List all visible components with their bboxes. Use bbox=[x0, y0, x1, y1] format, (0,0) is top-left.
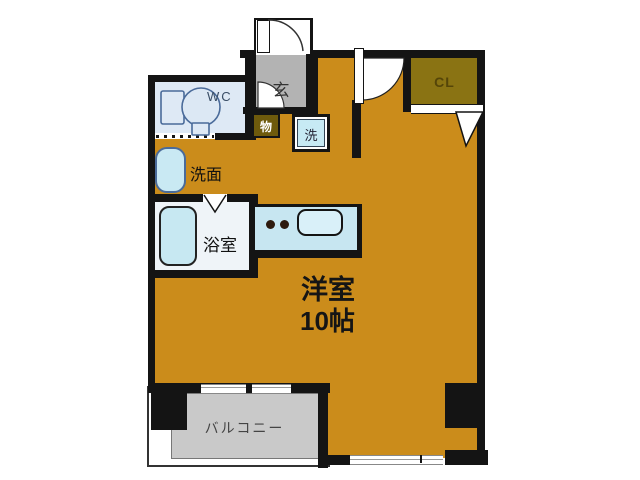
wc-label: WC bbox=[207, 89, 233, 104]
balcony-window-right bbox=[252, 384, 291, 394]
wall-bath-top-a bbox=[148, 194, 203, 202]
wall-bath-bottom bbox=[148, 270, 258, 278]
bottom-window-midline bbox=[350, 459, 443, 460]
wall-left bbox=[148, 75, 155, 385]
burner-dot-1 bbox=[266, 220, 275, 229]
storage-label: 物 bbox=[252, 118, 280, 135]
floorplan-canvas: 玄 WC 物 洗 洗面 浴室 CL バルコニー 洋室 10帖 bbox=[0, 0, 640, 480]
washbasin-label: 洗面 bbox=[190, 161, 222, 185]
balcony-outline-bottom bbox=[147, 465, 330, 467]
bottom-window-tick bbox=[420, 455, 422, 463]
closet-door-triangle bbox=[455, 110, 485, 148]
washer-label: 洗 bbox=[292, 125, 330, 144]
burner-dot-2 bbox=[280, 220, 289, 229]
room-door-leaf bbox=[354, 48, 364, 104]
balcony-window-left bbox=[201, 384, 246, 394]
balcony-window-right-midline bbox=[252, 387, 291, 388]
bottom-window bbox=[350, 455, 443, 465]
balcony-outline-left bbox=[147, 386, 149, 467]
room-door-arc bbox=[360, 56, 408, 104]
bathroom-label: 浴室 bbox=[203, 231, 237, 256]
main-room-size: 10帖 bbox=[300, 301, 355, 338]
wall-wc-top bbox=[148, 75, 252, 82]
entrance-label: 玄 bbox=[269, 76, 293, 101]
bathtub bbox=[159, 206, 197, 266]
kitchen-sink bbox=[297, 209, 343, 236]
corner-bottom-right bbox=[445, 450, 488, 465]
pillar-right bbox=[445, 383, 484, 428]
wall-entrance-right bbox=[306, 50, 318, 114]
entrance-door-arc bbox=[254, 18, 308, 52]
wall-hall bbox=[352, 100, 361, 158]
wall-balcony-right bbox=[318, 393, 328, 468]
wall-bottom-mid bbox=[328, 455, 350, 465]
balcony-window-left-midline bbox=[201, 387, 246, 388]
washbasin-icon bbox=[155, 147, 186, 193]
balcony-label: バルコニー bbox=[171, 418, 318, 438]
bath-folding-door bbox=[203, 193, 227, 215]
closet-label: CL bbox=[411, 74, 478, 90]
